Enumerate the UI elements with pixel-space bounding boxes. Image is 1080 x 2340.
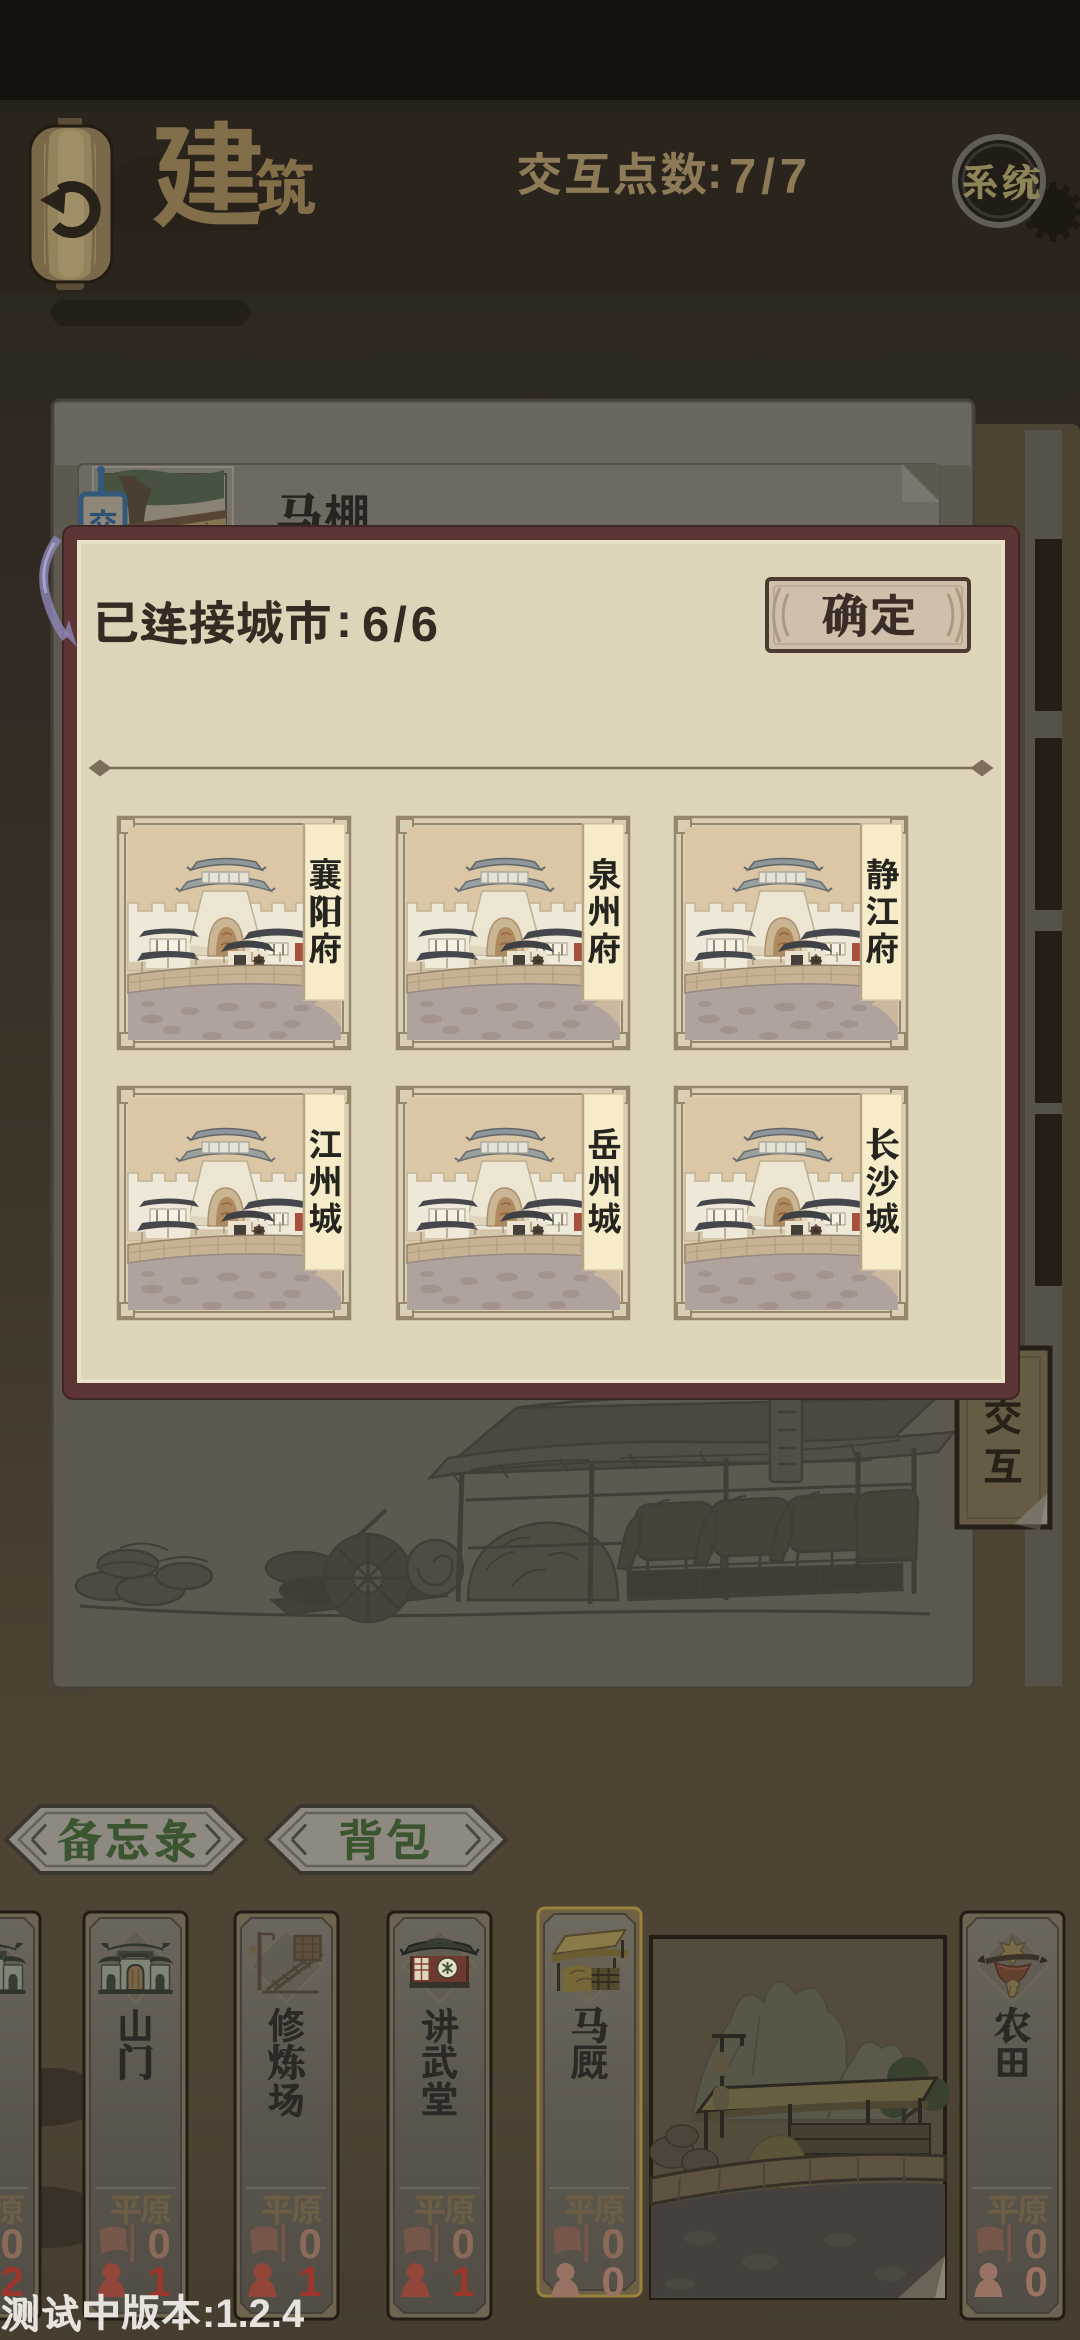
svg-text:0: 0 <box>1025 2258 1048 2305</box>
svg-text:1: 1 <box>452 2258 475 2305</box>
svg-text::: : <box>707 146 722 198</box>
svg-text:7/7: 7/7 <box>729 150 807 204</box>
svg-text:6/6: 6/6 <box>362 598 438 652</box>
svg-text::1.2.4: :1.2.4 <box>202 2292 305 2336</box>
svg-text::: : <box>336 595 352 648</box>
svg-text:0: 0 <box>602 2258 625 2305</box>
